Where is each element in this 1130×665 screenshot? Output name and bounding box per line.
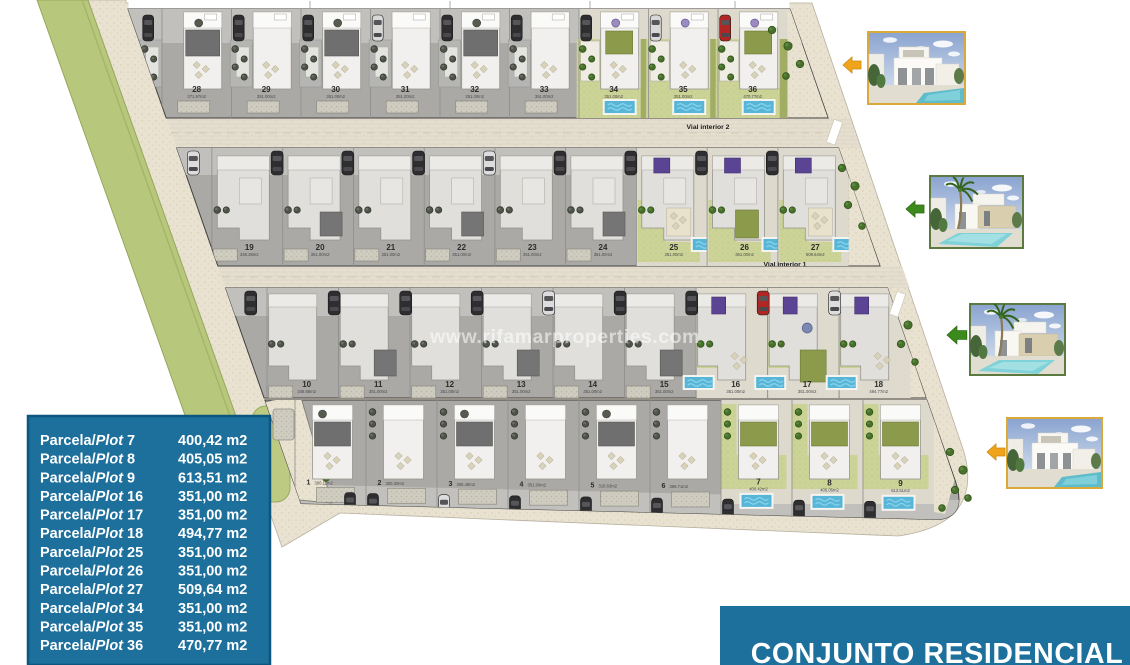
- svg-text:351.00m2: 351.00m2: [655, 389, 674, 394]
- svg-text:351.00m2: 351.00m2: [257, 94, 276, 99]
- svg-text:494,77 m2: 494,77 m2: [178, 526, 247, 542]
- svg-text:351.00m2: 351.00m2: [604, 94, 623, 99]
- svg-text:23: 23: [528, 243, 537, 252]
- svg-text:3: 3: [449, 481, 453, 488]
- svg-text:351.00m2: 351.00m2: [369, 389, 388, 394]
- svg-text:405.05m2: 405.05m2: [820, 488, 839, 493]
- svg-text:15: 15: [660, 380, 669, 389]
- svg-text:5: 5: [591, 482, 595, 489]
- svg-text:351.00m2: 351.00m2: [452, 252, 471, 257]
- svg-text:6: 6: [662, 483, 666, 490]
- svg-text:32: 32: [470, 85, 479, 94]
- svg-text:18: 18: [874, 380, 883, 389]
- svg-text:Parcela/Plot 18: Parcela/Plot 18: [40, 526, 143, 542]
- svg-text:494.77m2: 494.77m2: [869, 389, 888, 394]
- svg-text:20: 20: [316, 243, 325, 252]
- svg-text:509.64m2: 509.64m2: [806, 252, 825, 257]
- svg-text:351.00m2: 351.00m2: [535, 94, 554, 99]
- svg-text:9: 9: [898, 479, 903, 488]
- svg-text:19: 19: [245, 243, 254, 252]
- svg-text:400.42m2: 400.42m2: [749, 487, 768, 492]
- svg-text:470.77m2: 470.77m2: [743, 94, 762, 99]
- svg-text:30: 30: [331, 85, 340, 94]
- svg-text:351,00 m2: 351,00 m2: [178, 545, 247, 561]
- svg-text:1: 1: [307, 479, 311, 486]
- svg-text:351.00m2: 351.00m2: [528, 483, 547, 488]
- svg-text:351,00 m2: 351,00 m2: [178, 601, 247, 617]
- svg-text:351.00m2: 351.00m2: [674, 94, 693, 99]
- svg-text:371.97m2: 371.97m2: [187, 94, 206, 99]
- svg-text:300.11m2: 300.11m2: [315, 480, 334, 485]
- svg-text:351,00 m2: 351,00 m2: [178, 620, 247, 636]
- svg-text:7: 7: [756, 478, 761, 487]
- svg-text:CONJUNTO RESIDENCIAL: CONJUNTO RESIDENCIAL: [751, 638, 1124, 665]
- svg-text:Parcela/Plot 34: Parcela/Plot 34: [40, 601, 143, 617]
- svg-text:300.30m2: 300.30m2: [386, 481, 405, 486]
- svg-text:Parcela/Plot 25: Parcela/Plot 25: [40, 545, 143, 561]
- svg-text:318.63m2: 318.63m2: [599, 483, 618, 488]
- svg-text:25: 25: [669, 243, 678, 252]
- svg-text:26: 26: [740, 243, 749, 252]
- svg-text:16: 16: [731, 380, 740, 389]
- svg-text:29: 29: [262, 85, 271, 94]
- svg-text:509,64 m2: 509,64 m2: [178, 582, 247, 598]
- svg-text:351.00m2: 351.00m2: [594, 252, 613, 257]
- svg-text:4: 4: [520, 482, 524, 489]
- svg-text:8: 8: [827, 479, 832, 488]
- svg-text:351,00 m2: 351,00 m2: [178, 489, 247, 505]
- svg-text:351.00m2: 351.00m2: [798, 389, 817, 394]
- svg-text:405,05 m2: 405,05 m2: [178, 452, 247, 468]
- svg-text:348.68m2: 348.68m2: [297, 389, 316, 394]
- svg-text:351.00m2: 351.00m2: [726, 389, 745, 394]
- svg-text:Parcela/Plot 16: Parcela/Plot 16: [40, 489, 143, 505]
- svg-text:351.00m2: 351.00m2: [512, 389, 531, 394]
- svg-text:351,00 m2: 351,00 m2: [178, 564, 247, 580]
- svg-text:Parcela/Plot 8: Parcela/Plot 8: [40, 452, 135, 468]
- svg-text:Parcela/Plot 7: Parcela/Plot 7: [40, 433, 135, 449]
- svg-text:11: 11: [374, 380, 383, 389]
- svg-text:36: 36: [748, 85, 757, 94]
- svg-text:21: 21: [386, 243, 395, 252]
- svg-text:351.00m2: 351.00m2: [664, 252, 683, 257]
- svg-text:Vial interior 1: Vial interior 1: [764, 262, 807, 269]
- svg-text:27: 27: [811, 243, 820, 252]
- svg-text:351.00m2: 351.00m2: [583, 389, 602, 394]
- svg-text:34: 34: [609, 85, 618, 94]
- svg-text:2: 2: [378, 480, 382, 487]
- svg-text:31: 31: [401, 85, 410, 94]
- svg-text:Parcela/Plot 26: Parcela/Plot 26: [40, 564, 143, 580]
- svg-text:28: 28: [192, 85, 201, 94]
- svg-text:Parcela/Plot 17: Parcela/Plot 17: [40, 508, 143, 524]
- svg-text:24: 24: [599, 243, 608, 252]
- svg-text:470,77 m2: 470,77 m2: [178, 638, 247, 654]
- svg-text:33: 33: [540, 85, 549, 94]
- svg-text:10: 10: [302, 380, 311, 389]
- svg-text:400,42 m2: 400,42 m2: [178, 433, 247, 449]
- svg-text:613,51 m2: 613,51 m2: [178, 470, 247, 486]
- svg-text:12: 12: [445, 380, 454, 389]
- svg-text:369.71m2: 369.71m2: [670, 484, 689, 489]
- svg-text:351.00m2: 351.00m2: [326, 94, 345, 99]
- svg-text:351,00 m2: 351,00 m2: [178, 508, 247, 524]
- svg-text:345.38m2: 345.38m2: [240, 252, 259, 257]
- svg-text:Parcela/Plot 9: Parcela/Plot 9: [40, 470, 135, 486]
- svg-text:351.00m2: 351.00m2: [735, 252, 754, 257]
- svg-text:14: 14: [588, 380, 597, 389]
- svg-text:351.00m2: 351.00m2: [440, 389, 459, 394]
- svg-text:13: 13: [517, 380, 526, 389]
- svg-text:Parcela/Plot 36: Parcela/Plot 36: [40, 638, 143, 654]
- svg-text:www.rifamarproperties.com: www.rifamarproperties.com: [429, 326, 700, 348]
- svg-text:Parcela/Plot 27: Parcela/Plot 27: [40, 582, 143, 598]
- svg-text:351.00m2: 351.00m2: [311, 252, 330, 257]
- svg-text:Vial interior 2: Vial interior 2: [687, 124, 730, 131]
- svg-text:35: 35: [679, 85, 688, 94]
- svg-text:351.00m2: 351.00m2: [396, 94, 415, 99]
- svg-text:22: 22: [457, 243, 466, 252]
- svg-text:351.00m2: 351.00m2: [381, 252, 400, 257]
- svg-text:351.00m2: 351.00m2: [523, 252, 542, 257]
- svg-text:Parcela/Plot 35: Parcela/Plot 35: [40, 620, 143, 636]
- svg-text:613.51m2: 613.51m2: [891, 488, 910, 493]
- svg-text:306.48m2: 306.48m2: [457, 482, 476, 487]
- svg-text:17: 17: [803, 380, 812, 389]
- svg-text:351.00m2: 351.00m2: [465, 94, 484, 99]
